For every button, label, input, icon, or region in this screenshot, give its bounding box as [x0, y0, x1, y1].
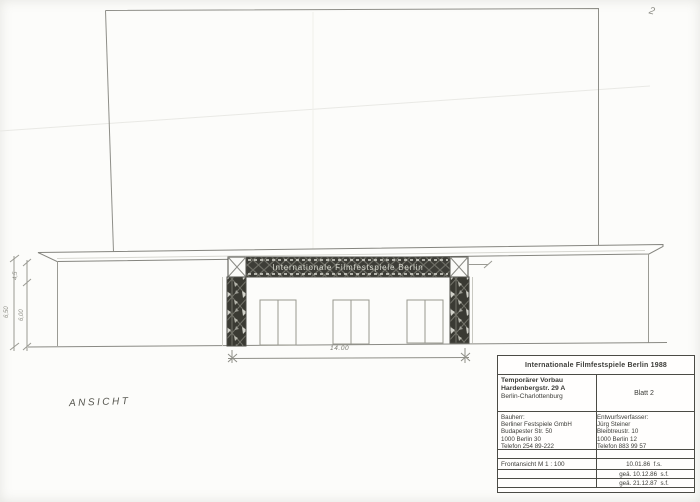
empty-cell-left: [498, 450, 597, 458]
sheet-number: Blatt 2: [594, 375, 694, 411]
view-label: ANSICHT: [69, 396, 131, 409]
project-street: Hardenbergstr. 29 A: [501, 385, 596, 393]
contact-row: Bauherr: Berliner Festspiele GmbH Budape…: [498, 412, 694, 450]
date-revision-1: geä. 10.12.86 s.f.: [594, 470, 694, 478]
designer-label: Entwurfsverfasser:: [597, 414, 694, 421]
double-door-1: [260, 300, 296, 345]
date-initial: 10.01.86 f.s.: [594, 459, 694, 469]
designer-phone: Telefon 883 99 57: [597, 443, 694, 450]
double-door-2: [333, 300, 369, 344]
scan-crease-line: [0, 86, 650, 131]
height-dimension-value-1: 4,5: [13, 272, 19, 280]
entrance-pillar-right: [450, 277, 469, 343]
entrance-pillar-left: [227, 277, 246, 346]
revision-row-1: geä. 10.12.86 s.f.: [498, 470, 694, 479]
client-label: Bauherr:: [501, 414, 596, 421]
project-district: Berlin-Charlottenburg: [501, 393, 596, 401]
revision-row-2: geä. 21.12.87 s.f.: [498, 479, 694, 488]
project-address-cell: Temporärer Vorbau Hardenbergstr. 29 A Be…: [498, 375, 597, 411]
client-cell: Bauherr: Berliner Festspiele GmbH Budape…: [498, 412, 597, 449]
title-block: Internationale Filmfestspiele Berlin 198…: [497, 355, 695, 493]
designer-street: Bleibtreustr. 10: [597, 428, 694, 435]
empty-row: [498, 450, 694, 459]
project-row: Temporärer Vorbau Hardenbergstr. 29 A Be…: [498, 375, 694, 412]
double-door-3: [407, 300, 443, 343]
client-city: 1000 Berlin 30: [501, 436, 596, 443]
designer-name: Jürg Steiner: [597, 421, 694, 428]
height-dimension-value-2: 6,50: [4, 306, 10, 318]
sign-end-box-right: [450, 257, 468, 277]
revision-cell-left-2: [498, 479, 597, 487]
project-name: Temporärer Vorbau: [501, 377, 596, 385]
sign-end-box-left: [228, 257, 246, 277]
scale-row: Frontansicht M 1 : 100 10.01.86 f.s.: [498, 459, 694, 470]
empty-cell-right: [594, 450, 694, 458]
date-revision-2: geä. 21.12.87 s.f.: [594, 479, 694, 487]
building-outline: [106, 9, 599, 253]
designer-cell: Entwurfsverfasser: Jürg Steiner Bleibtre…: [594, 412, 694, 449]
client-street: Budapester Str. 50: [501, 428, 596, 435]
client-name: Berliner Festspiele GmbH: [501, 421, 596, 428]
width-dimension-value: 14.00: [330, 345, 349, 352]
revision-cell-left-1: [498, 470, 597, 478]
designer-city: 1000 Berlin 12: [597, 436, 694, 443]
client-phone: Telefon 254 89-222: [501, 443, 596, 450]
sign-leader-line: [468, 261, 492, 268]
height-dimension-value-3: 6,00: [19, 309, 25, 321]
title-block-header: Internationale Filmfestspiele Berlin 198…: [498, 356, 694, 375]
entrance-sign-text: Internationale Filmfestspiele Berlin: [246, 257, 450, 277]
drawing-sheet: Internationale Filmfestspiele Berlin ANS…: [0, 0, 700, 502]
scale-label: Frontansicht M 1 : 100: [498, 459, 597, 469]
height-dimension-chain: [10, 255, 31, 351]
